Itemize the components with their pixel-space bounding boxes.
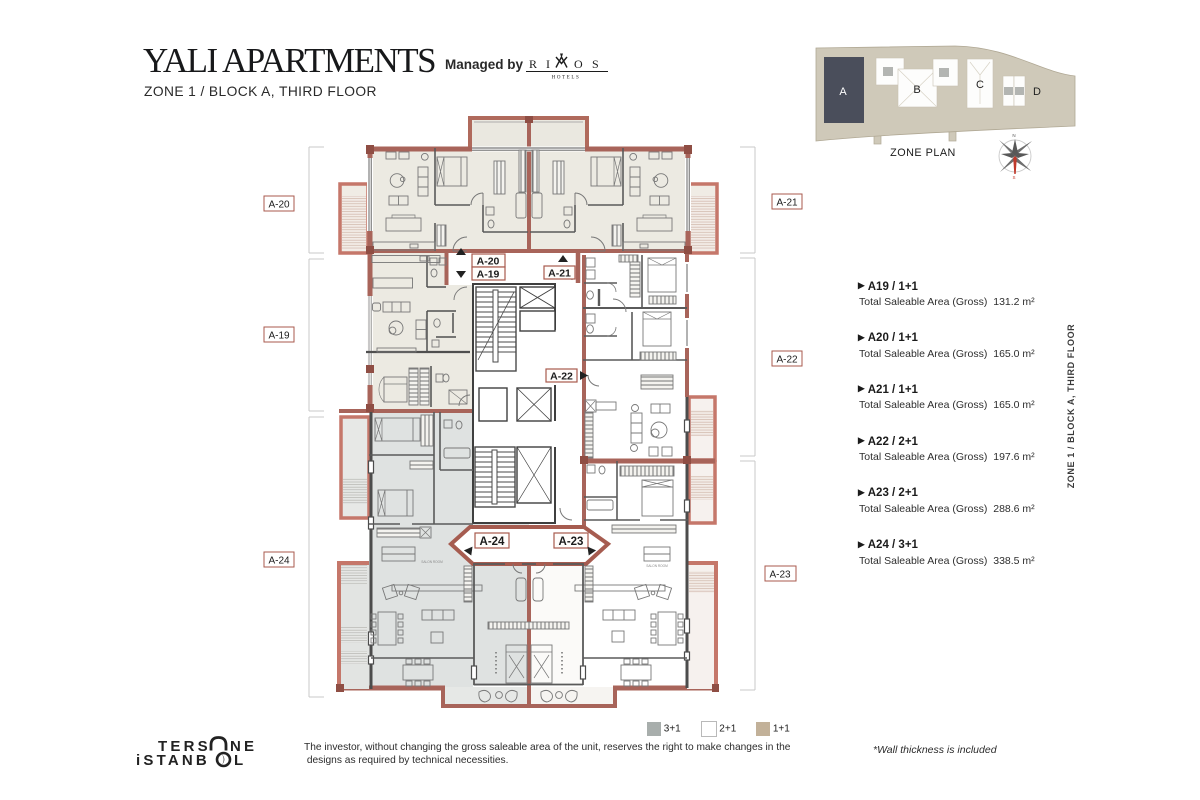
svg-text:A-22: A-22	[776, 355, 798, 366]
svg-text:A-21: A-21	[776, 198, 798, 209]
svg-text:SALON ROOM: SALON ROOM	[421, 560, 443, 564]
svg-text:SALON ROOM: SALON ROOM	[646, 564, 668, 568]
svg-text:S: S	[1012, 175, 1015, 180]
svg-text:A-24: A-24	[480, 536, 506, 548]
svg-text:A-19: A-19	[477, 269, 500, 281]
svg-text:A-22: A-22	[550, 371, 573, 383]
svg-text:N: N	[1012, 133, 1015, 138]
svg-text:C: C	[976, 79, 984, 91]
svg-text:A-19: A-19	[268, 331, 290, 342]
svg-text:A-20: A-20	[268, 200, 290, 211]
svg-text:A-23: A-23	[559, 536, 584, 548]
svg-text:A: A	[839, 86, 847, 98]
svg-text:B: B	[913, 84, 920, 96]
svg-text:ZONE PLAN: ZONE PLAN	[890, 147, 956, 159]
svg-text:D: D	[1033, 86, 1041, 98]
svg-text:A-24: A-24	[268, 556, 290, 567]
svg-text:A-20: A-20	[477, 256, 500, 268]
svg-text:A-23: A-23	[769, 570, 791, 581]
svg-text:A-21: A-21	[548, 268, 571, 280]
